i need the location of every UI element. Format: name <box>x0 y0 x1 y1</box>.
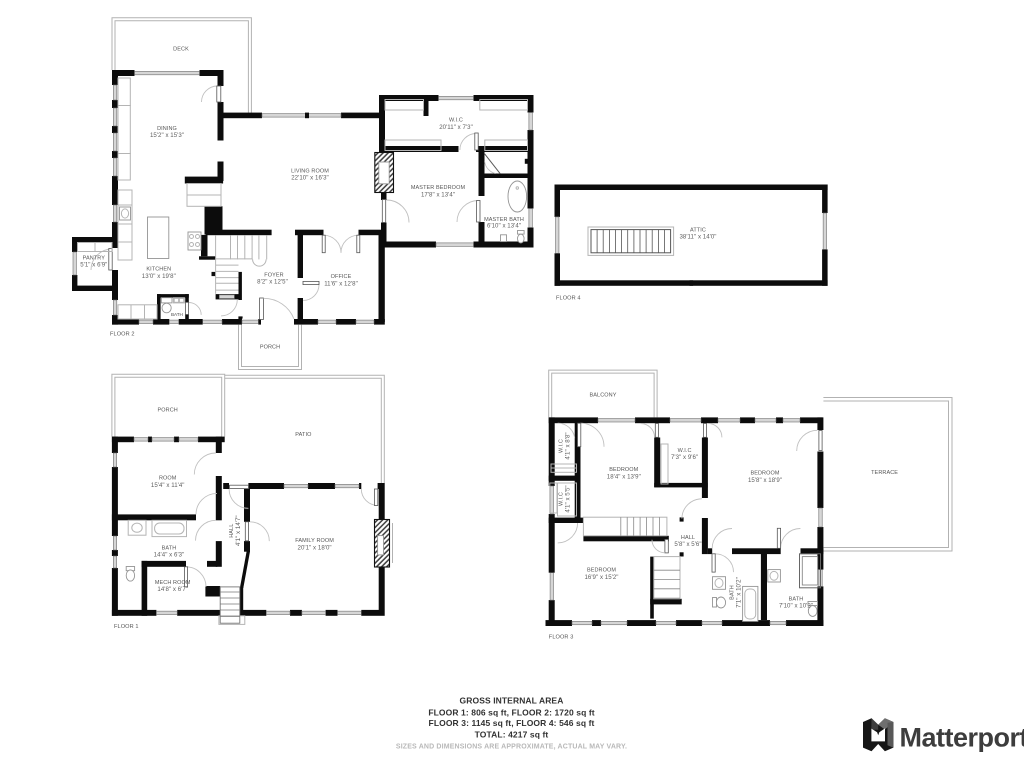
svg-text:Matterport: Matterport <box>900 723 1024 753</box>
svg-text:14'8" x 6'7": 14'8" x 6'7" <box>157 586 188 593</box>
svg-text:7'1" x 10'2": 7'1" x 10'2" <box>736 577 743 608</box>
svg-text:FLOOR 3: FLOOR 3 <box>549 634 574 640</box>
svg-text:7'3" x 9'6": 7'3" x 9'6" <box>671 454 698 461</box>
svg-text:13'0" x 19'8": 13'0" x 19'8" <box>142 273 176 280</box>
svg-text:FAMILY ROOM: FAMILY ROOM <box>295 538 334 544</box>
svg-text:DINING: DINING <box>157 126 177 132</box>
svg-text:7'10" x 10'2": 7'10" x 10'2" <box>779 603 813 610</box>
svg-text:OFFICE: OFFICE <box>331 274 352 280</box>
svg-text:BALCONY: BALCONY <box>590 392 617 398</box>
svg-text:MASTER BEDROOM: MASTER BEDROOM <box>411 185 466 191</box>
svg-text:5'8" x 5'6": 5'8" x 5'6" <box>674 541 701 548</box>
svg-text:DECK: DECK <box>173 47 189 53</box>
svg-text:20'11" x 7'3": 20'11" x 7'3" <box>439 124 473 131</box>
svg-text:FLOOR 3: 1145 sq ft, FLOOR 4:: FLOOR 3: 1145 sq ft, FLOOR 4: 546 sq ft <box>429 718 595 728</box>
svg-text:8'2" x 12'5": 8'2" x 12'5" <box>257 279 288 286</box>
svg-text:TERRACE: TERRACE <box>871 470 898 476</box>
svg-text:GROSS INTERNAL AREA: GROSS INTERNAL AREA <box>460 696 564 706</box>
svg-text:PORCH: PORCH <box>260 344 280 350</box>
svg-text:W.I.C: W.I.C <box>449 118 463 124</box>
svg-text:ROOM: ROOM <box>159 476 177 482</box>
svg-text:4'1" x 8'8": 4'1" x 8'8" <box>565 432 572 459</box>
svg-text:LIVING ROOM: LIVING ROOM <box>291 168 329 174</box>
svg-text:17'8" x 13'4": 17'8" x 13'4" <box>421 192 455 199</box>
svg-text:PATIO: PATIO <box>295 432 312 438</box>
svg-text:14'4" x 6'3": 14'4" x 6'3" <box>154 552 185 559</box>
svg-text:16'9" x 15'2": 16'9" x 15'2" <box>584 574 618 581</box>
svg-text:FLOOR 1: 806 sq ft, FLOOR 2: 1: FLOOR 1: 806 sq ft, FLOOR 2: 1720 sq ft <box>428 707 594 717</box>
svg-text:FLOOR 4: FLOOR 4 <box>556 296 581 302</box>
svg-text:11'6" x 12'8": 11'6" x 12'8" <box>324 281 358 288</box>
svg-text:15'2" x 15'3": 15'2" x 15'3" <box>150 132 184 139</box>
svg-text:18'4" x 13'9": 18'4" x 13'9" <box>607 474 641 481</box>
svg-text:15'8" x 18'9": 15'8" x 18'9" <box>748 477 782 484</box>
svg-text:BEDROOM: BEDROOM <box>609 467 638 473</box>
svg-text:4'1" x 5'5": 4'1" x 5'5" <box>565 485 572 512</box>
svg-text:SIZES AND DIMENSIONS ARE APPRO: SIZES AND DIMENSIONS ARE APPROXIMATE, AC… <box>396 744 627 751</box>
svg-text:BEDROOM: BEDROOM <box>587 568 616 574</box>
svg-text:4'1" x 14'7": 4'1" x 14'7" <box>235 515 242 546</box>
svg-text:BATH: BATH <box>171 312 183 317</box>
svg-text:KITCHEN: KITCHEN <box>146 267 171 273</box>
svg-text:FLOOR 1: FLOOR 1 <box>114 624 139 630</box>
svg-text:BEDROOM: BEDROOM <box>750 471 779 477</box>
svg-text:15'4" x 11'4": 15'4" x 11'4" <box>151 482 185 489</box>
svg-text:PORCH: PORCH <box>158 408 178 414</box>
svg-text:20'1" x 18'0": 20'1" x 18'0" <box>298 545 332 552</box>
svg-text:TOTAL: 4217 sq ft: TOTAL: 4217 sq ft <box>475 730 549 740</box>
svg-text:5'1" x 6'9": 5'1" x 6'9" <box>80 262 107 269</box>
svg-text:6'10" x 13'4": 6'10" x 13'4" <box>487 222 521 229</box>
svg-text:FLOOR 2: FLOOR 2 <box>110 332 135 338</box>
svg-text:38'11" x 14'0": 38'11" x 14'0" <box>679 234 716 241</box>
svg-text:22'10" x 16'3": 22'10" x 16'3" <box>291 175 329 182</box>
